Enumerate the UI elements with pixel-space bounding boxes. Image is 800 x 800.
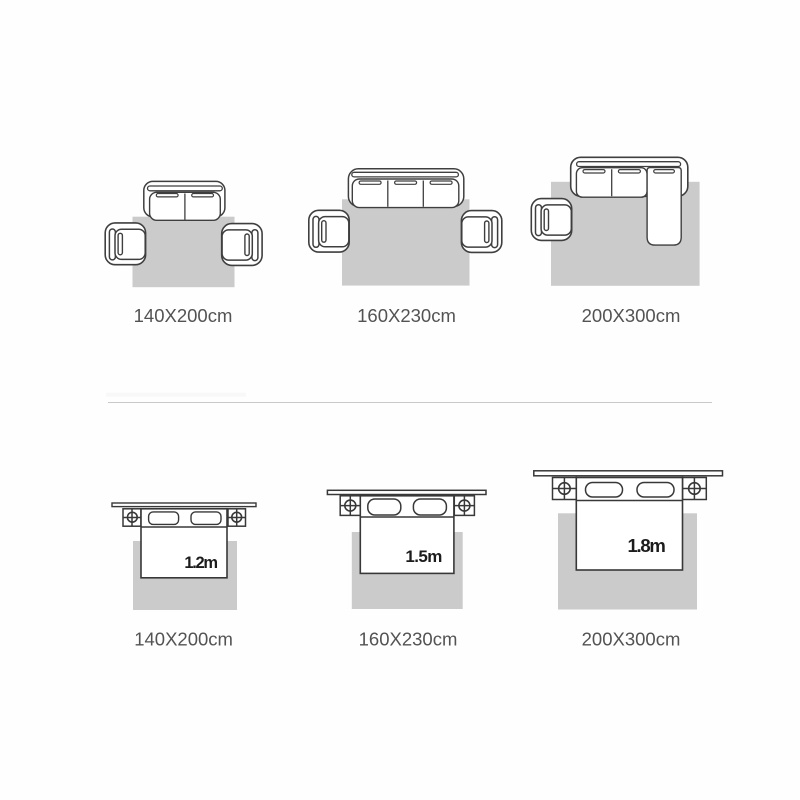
svg-text:1.2m: 1.2m bbox=[184, 554, 217, 572]
svg-text:1.5m: 1.5m bbox=[405, 547, 442, 566]
svg-text:1.8m: 1.8m bbox=[628, 535, 666, 556]
svg-text:140X200cm: 140X200cm bbox=[134, 628, 233, 649]
svg-text:160X230cm: 160X230cm bbox=[357, 305, 456, 326]
svg-text:140X200cm: 140X200cm bbox=[134, 305, 233, 326]
svg-text:160X230cm: 160X230cm bbox=[359, 628, 458, 649]
svg-text:200X300cm: 200X300cm bbox=[582, 628, 681, 649]
svg-text:200X300cm: 200X300cm bbox=[582, 305, 681, 326]
